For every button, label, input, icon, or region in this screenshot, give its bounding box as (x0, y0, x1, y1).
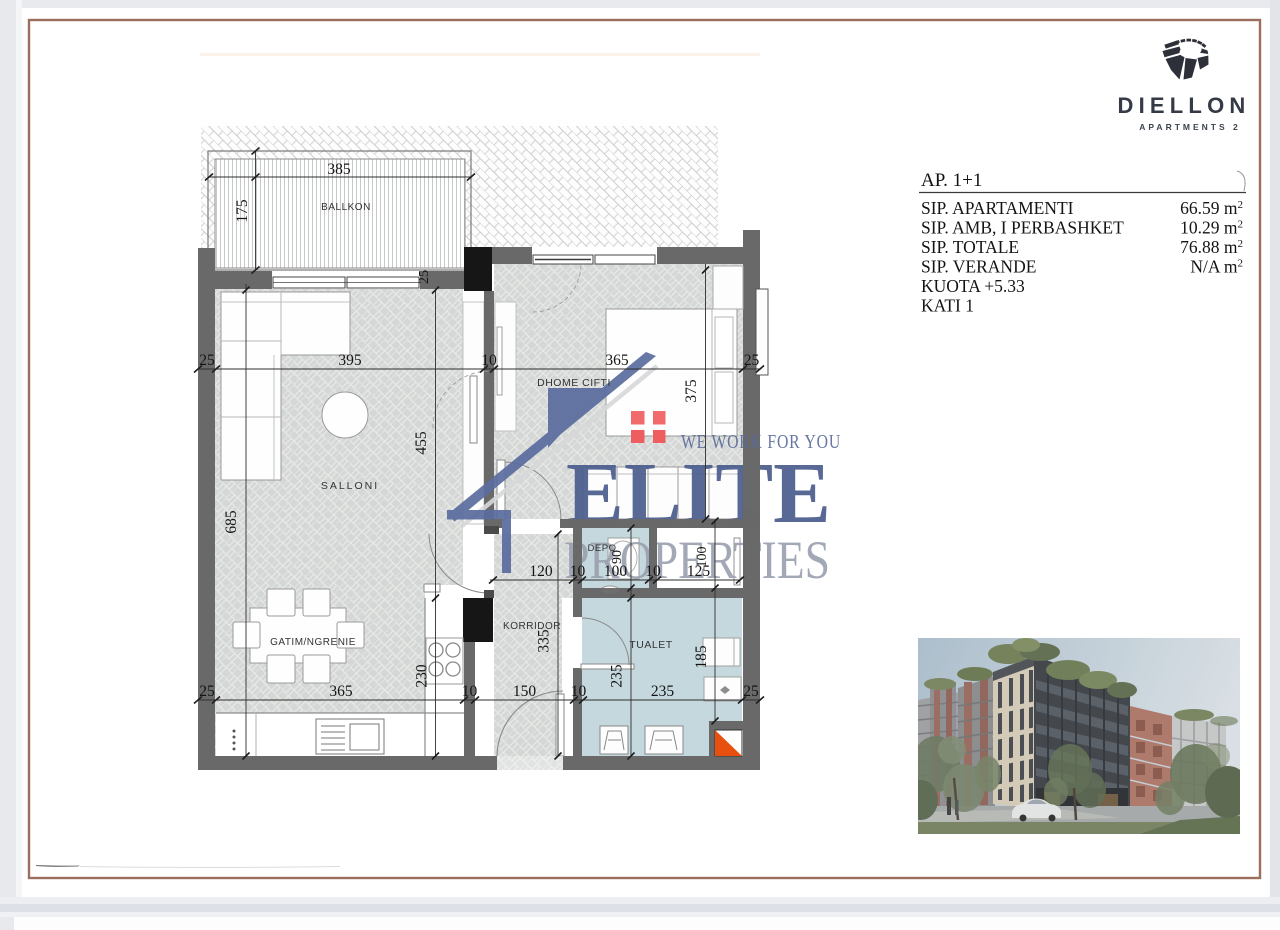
svg-text:DIELLON: DIELLON (1118, 93, 1251, 118)
svg-text:76.88 m2: 76.88 m2 (1180, 237, 1243, 257)
svg-text:10: 10 (645, 563, 661, 580)
svg-text:375: 375 (683, 379, 700, 403)
svg-text:100: 100 (604, 563, 628, 580)
svg-text:100: 100 (695, 547, 710, 568)
svg-text:455: 455 (413, 431, 430, 455)
svg-text:DEPO: DEPO (588, 543, 617, 554)
svg-text:230: 230 (414, 664, 431, 688)
svg-text:10: 10 (571, 683, 587, 700)
svg-text:235: 235 (609, 664, 626, 688)
svg-text:365: 365 (329, 683, 353, 700)
svg-text:365: 365 (605, 352, 629, 369)
svg-text:APARTMENTS 2: APARTMENTS 2 (1139, 122, 1241, 132)
svg-text:395: 395 (338, 352, 362, 369)
svg-text:66.59 m2: 66.59 m2 (1180, 198, 1243, 218)
svg-text:10.29 m2: 10.29 m2 (1180, 218, 1243, 238)
svg-text:175: 175 (234, 199, 251, 223)
svg-text:10: 10 (570, 563, 586, 580)
svg-text:150: 150 (513, 683, 537, 700)
svg-text:GATIM/NGRENIE: GATIM/NGRENIE (270, 637, 356, 648)
svg-text:685: 685 (223, 510, 240, 534)
svg-text:10: 10 (481, 352, 497, 369)
svg-text:N/A m2: N/A m2 (1190, 257, 1243, 277)
svg-text:10: 10 (462, 683, 478, 700)
svg-text:KATI 1: KATI 1 (921, 296, 974, 316)
svg-text:335: 335 (536, 629, 553, 653)
svg-text:25: 25 (744, 352, 760, 369)
svg-text:185: 185 (693, 645, 710, 669)
svg-text:SIP. VERANDE: SIP. VERANDE (921, 257, 1036, 277)
svg-text:SIP. TOTALE: SIP. TOTALE (921, 237, 1019, 257)
svg-text:25: 25 (743, 683, 759, 700)
svg-text:TUALET: TUALET (629, 639, 672, 651)
svg-text:AP. 1+1: AP. 1+1 (921, 170, 982, 191)
svg-text:25: 25 (417, 270, 432, 284)
svg-text:KUOTA +5.33: KUOTA +5.33 (921, 276, 1025, 296)
svg-text:SIP. APARTAMENTI: SIP. APARTAMENTI (921, 198, 1074, 218)
svg-text:SIP. AMB, I PERBASHKET: SIP. AMB, I PERBASHKET (921, 218, 1124, 238)
svg-text:25: 25 (199, 352, 215, 369)
svg-text:DHOME CIFTI: DHOME CIFTI (537, 377, 611, 389)
svg-text:235: 235 (651, 683, 675, 700)
svg-text:BALLKON: BALLKON (321, 202, 371, 213)
svg-text:SALLONI: SALLONI (321, 480, 379, 492)
svg-text:KORRIDOR: KORRIDOR (503, 621, 561, 632)
svg-text:25: 25 (199, 683, 215, 700)
svg-text:385: 385 (327, 161, 351, 178)
svg-text:120: 120 (529, 563, 553, 580)
